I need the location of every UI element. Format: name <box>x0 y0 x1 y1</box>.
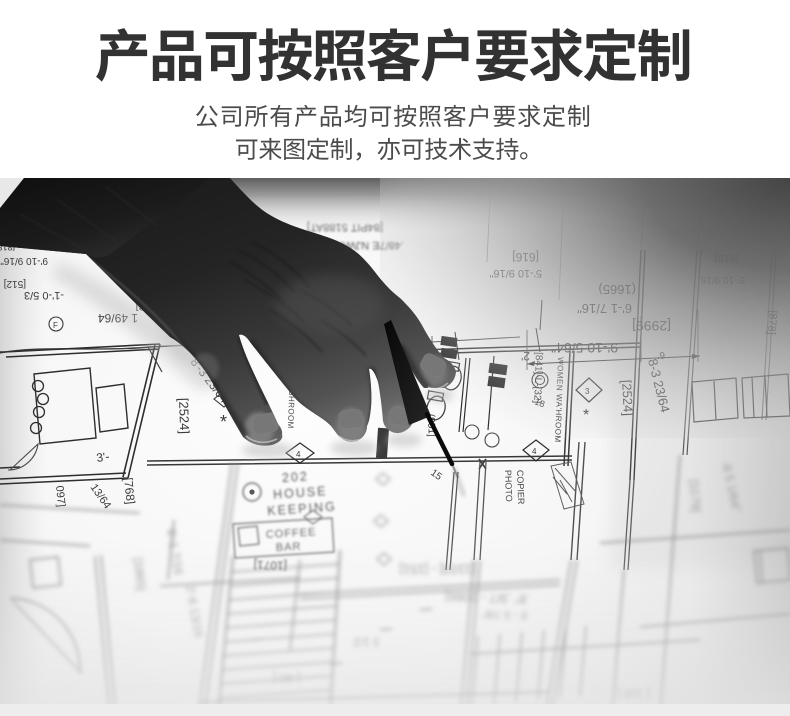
svg-text:COPIER: COPIER <box>515 470 526 505</box>
svg-text:4: 4 <box>296 450 301 459</box>
svg-text:9'-10 9/16": 9'-10 9/16" <box>0 255 48 266</box>
svg-text:F: F <box>53 321 58 330</box>
svg-text:4: 4 <box>532 447 537 456</box>
svg-text:[768]: [768] <box>121 477 138 505</box>
svg-text:3'-: 3'- <box>95 449 110 465</box>
svg-text:202: 202 <box>282 469 310 485</box>
svg-text:[1179]: [1179] <box>687 479 703 512</box>
svg-text:[512]: [512] <box>4 278 26 289</box>
svg-text:-1'-0 5/3: -1'-0 5/3 <box>24 289 64 301</box>
svg-text:097]: 097] <box>53 485 67 508</box>
svg-text:[2524]: [2524] <box>176 398 192 435</box>
svg-text:PHOTO: PHOTO <box>503 470 514 502</box>
svg-text:*: * <box>220 412 227 432</box>
